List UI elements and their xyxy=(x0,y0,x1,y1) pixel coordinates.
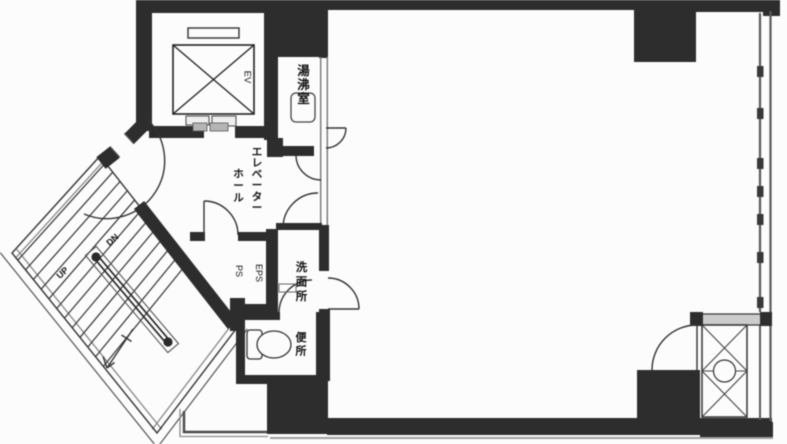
svg-text:EPS: EPS xyxy=(254,264,264,282)
svg-text:エレベーター: エレベーター xyxy=(252,146,263,214)
svg-text:ホール: ホール xyxy=(233,168,244,204)
svg-text:EV: EV xyxy=(242,71,253,84)
svg-text:便所: 便所 xyxy=(296,330,308,358)
svg-text:洗面所: 洗面所 xyxy=(296,260,308,303)
svg-text:PS: PS xyxy=(234,265,244,277)
svg-text:湯沸室: 湯沸室 xyxy=(297,63,310,106)
